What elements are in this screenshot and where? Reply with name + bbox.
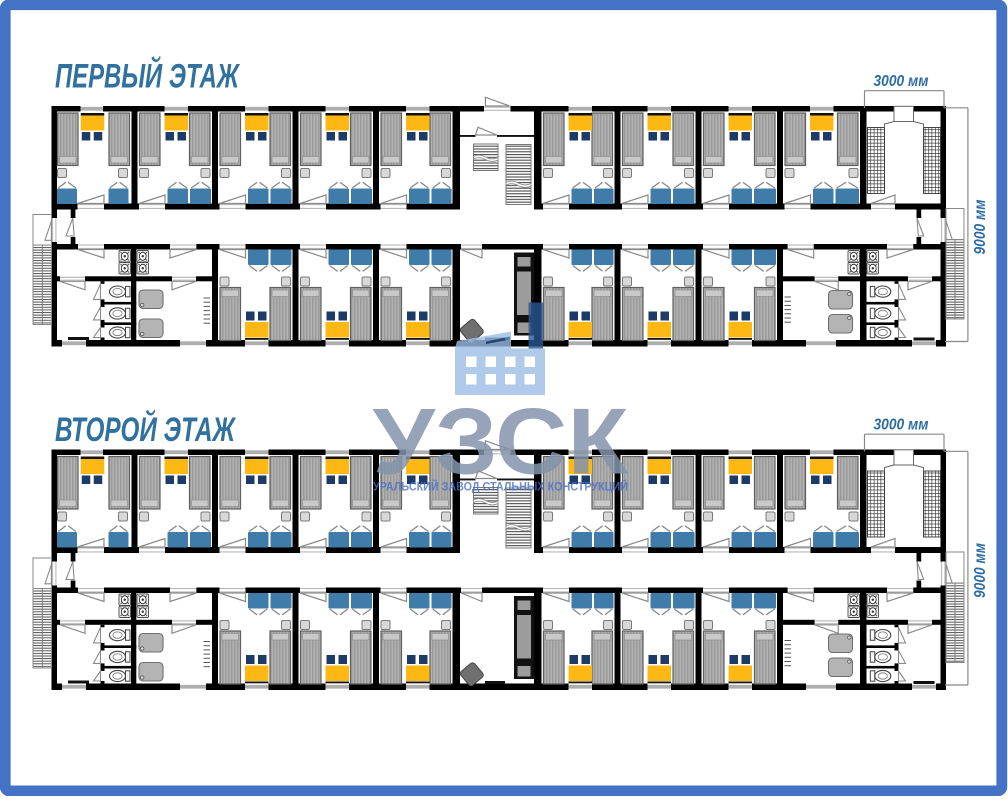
svg-text:3000 мм: 3000 мм (874, 417, 929, 434)
svg-text:ПЕРВЫЙ ЭТАЖ: ПЕРВЫЙ ЭТАЖ (55, 55, 240, 96)
svg-text:3000 мм: 3000 мм (874, 73, 929, 90)
svg-text:9000 мм: 9000 мм (972, 543, 989, 598)
svg-text:9000 мм: 9000 мм (972, 199, 989, 254)
svg-text:УЗСК: УЗСК (373, 389, 630, 494)
svg-text:ВТОРОЙ ЭТАЖ: ВТОРОЙ ЭТАЖ (55, 408, 236, 449)
svg-text:УРАЛЬСКИЙ ЗАВОД СТАЛЬНЫХ КОНСТ: УРАЛЬСКИЙ ЗАВОД СТАЛЬНЫХ КОНСТРУКЦИЙ (373, 479, 628, 494)
